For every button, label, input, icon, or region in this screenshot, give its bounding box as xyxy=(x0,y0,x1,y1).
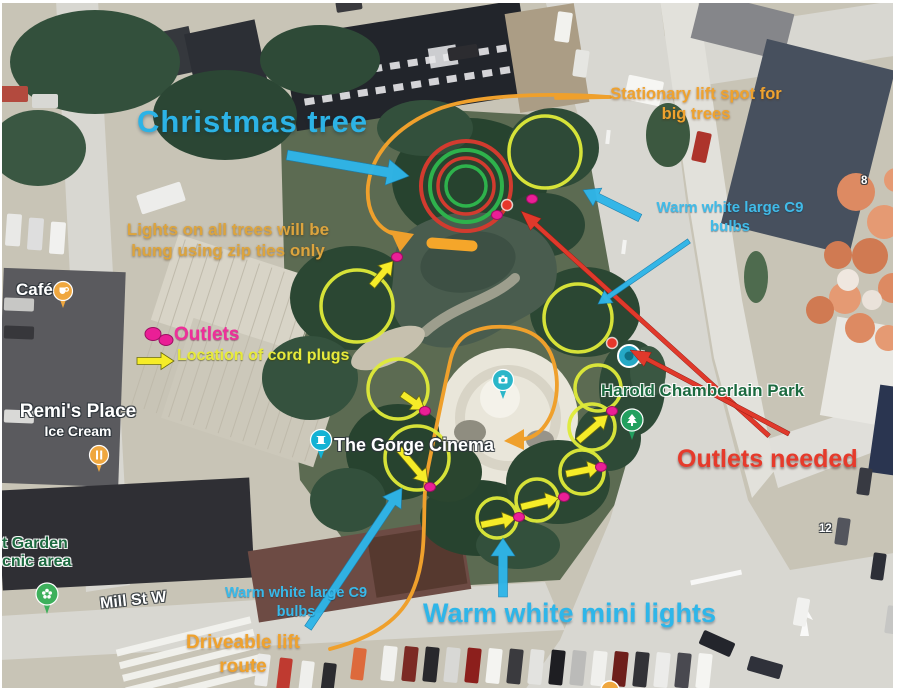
yellow-arrow xyxy=(576,415,608,444)
yellow-arrow xyxy=(565,461,601,478)
tree-circle xyxy=(544,284,612,352)
outlet-dot xyxy=(420,407,431,416)
tree-circle xyxy=(509,116,581,188)
outlet-needed-arrows xyxy=(521,211,790,438)
red-outlet-dot xyxy=(502,200,513,211)
outlet-dot xyxy=(492,211,503,220)
tree-circle xyxy=(321,270,393,342)
border-right xyxy=(893,0,900,697)
outlets-legend-dot xyxy=(145,328,161,341)
cafe-label: Café xyxy=(16,280,53,300)
driveable-route-label: Driveable lift route xyxy=(165,631,321,679)
yellow-arrow xyxy=(520,493,559,511)
outlets-legend-dot xyxy=(159,335,173,346)
c9-bulbs-bottom-label: Warm white large C9 bulbs xyxy=(200,584,392,622)
outlets-legend-label: Outlets xyxy=(174,324,239,346)
driveable-route-arrowhead xyxy=(504,429,524,450)
garden-label-line1: t Garden xyxy=(2,535,68,553)
yellow-arrow xyxy=(137,353,174,370)
outlet-dot xyxy=(514,513,525,522)
stationary-lift-label: Stationary lift spot for big trees xyxy=(588,84,804,124)
cyan-arrow xyxy=(286,150,409,185)
border-left xyxy=(0,0,2,697)
c9-bulbs-right-label: Warm white large C9 bulbs xyxy=(637,198,823,236)
annotated-satellite-map: Café Remi's Place Ice Cream The Gorge Ci… xyxy=(0,0,900,697)
cord-plug-arrows xyxy=(137,261,608,529)
remis-place-label: Remi's Place Ice Cream xyxy=(14,401,142,439)
lift-pad-dash xyxy=(432,243,472,246)
christmas-tree-label: Christmas tree xyxy=(137,104,368,140)
outlet-dot xyxy=(607,407,618,416)
outlets-needed-label: Outlets needed xyxy=(677,445,858,474)
target-ring xyxy=(430,150,502,222)
outlet-dot xyxy=(425,483,436,492)
cinema-label: The Gorge Cinema xyxy=(334,435,494,456)
route-number-12: 12 xyxy=(819,523,832,535)
yellow-arrow xyxy=(480,512,516,529)
red-outlet-dot xyxy=(607,338,618,349)
outlet-dot xyxy=(527,195,538,204)
route-number-8: 8 xyxy=(861,175,867,187)
cyan-arrow xyxy=(491,538,515,597)
border-top xyxy=(0,0,900,3)
garden-label-line2: cnic area xyxy=(2,553,71,571)
zip-ties-note: Lights on all trees will be hung using z… xyxy=(103,219,353,261)
stationary-lift-arrowhead xyxy=(390,230,414,252)
border-bottom xyxy=(0,688,900,697)
outlet-dot xyxy=(559,493,570,502)
cord-plugs-label: Location of cord plugs xyxy=(177,347,349,365)
outlet-dot xyxy=(596,463,607,472)
outlet-dot xyxy=(392,253,403,262)
park-label: Harold Chamberlain Park xyxy=(601,381,804,401)
mini-lights-label: Warm white mini lights xyxy=(423,598,716,629)
cyan-arrow xyxy=(583,188,642,222)
cyan-arrow xyxy=(598,239,690,304)
target-ring xyxy=(446,166,486,206)
